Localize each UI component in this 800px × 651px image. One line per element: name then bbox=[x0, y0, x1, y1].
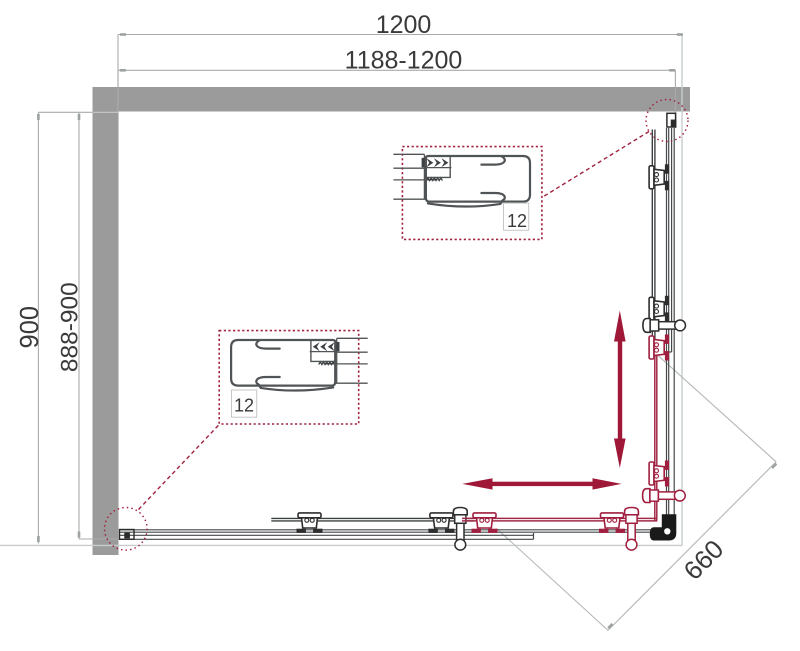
svg-text:888-900: 888-900 bbox=[57, 282, 84, 372]
svg-text:900: 900 bbox=[16, 306, 44, 349]
svg-text:12: 12 bbox=[234, 396, 254, 416]
svg-text:12: 12 bbox=[507, 211, 527, 231]
svg-text:1200: 1200 bbox=[376, 11, 432, 39]
svg-text:1188-1200: 1188-1200 bbox=[345, 47, 463, 75]
